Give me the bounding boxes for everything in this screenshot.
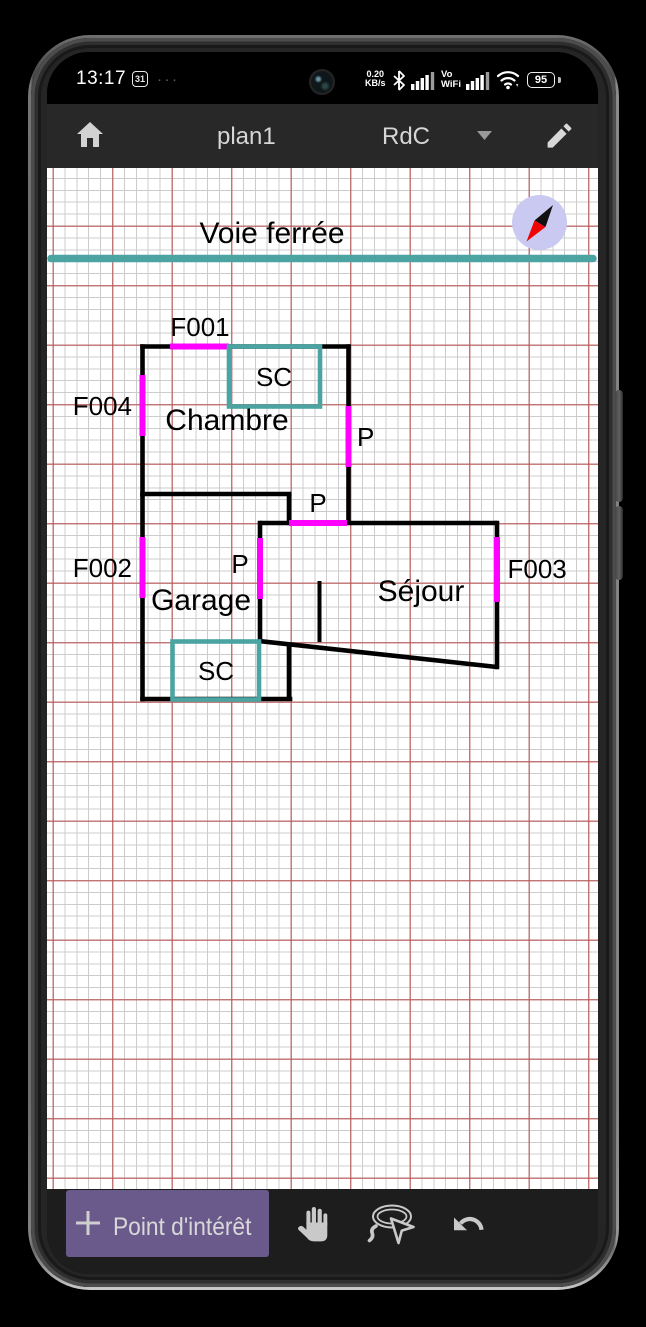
svg-text:P: P (231, 549, 248, 579)
svg-text:F002: F002 (73, 553, 132, 583)
svg-text:Chambre: Chambre (165, 404, 288, 437)
svg-text:Garage: Garage (151, 584, 251, 617)
svg-text:P: P (309, 488, 326, 518)
svg-text:P: P (357, 422, 374, 452)
svg-text:Séjour: Séjour (378, 575, 465, 608)
svg-text:F001: F001 (170, 312, 229, 342)
svg-text:F003: F003 (508, 554, 567, 584)
svg-text:Voie ferrée: Voie ferrée (199, 217, 344, 250)
svg-text:SC: SC (256, 362, 292, 392)
svg-text:F004: F004 (73, 391, 132, 421)
svg-text:SC: SC (198, 656, 234, 686)
